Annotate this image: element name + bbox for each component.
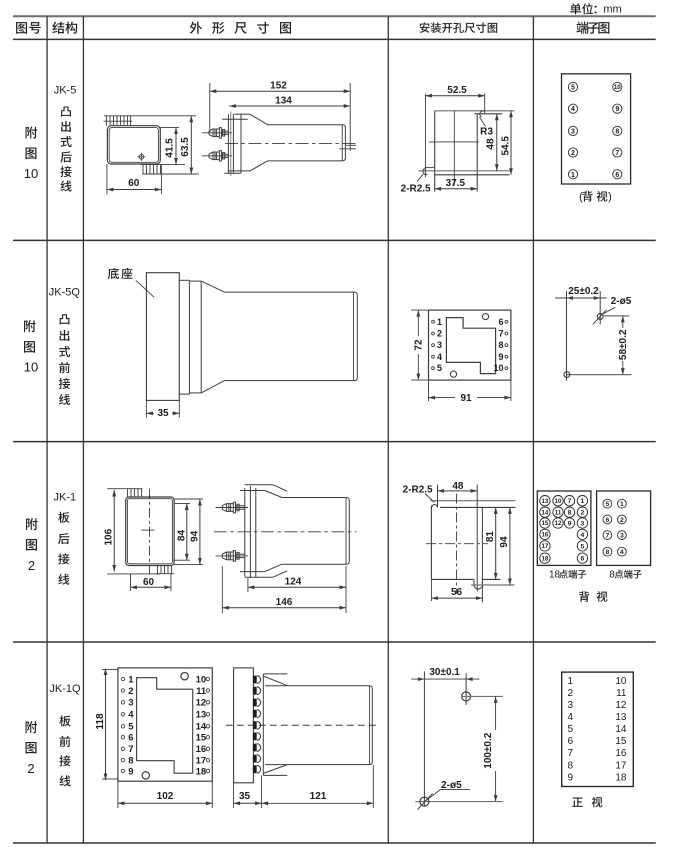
svg-text:JK-1: JK-1 (53, 492, 76, 504)
svg-text:9: 9 (128, 766, 133, 777)
svg-text:9: 9 (568, 520, 572, 527)
svg-text:12: 12 (615, 700, 627, 711)
svg-text:60: 60 (128, 178, 140, 189)
svg-text:9: 9 (615, 106, 619, 113)
svg-text:11: 11 (555, 509, 562, 516)
svg-text:81: 81 (485, 531, 496, 543)
svg-text:8: 8 (615, 128, 619, 135)
svg-text:5: 5 (581, 543, 585, 550)
svg-text:10: 10 (615, 676, 627, 687)
svg-text:2: 2 (28, 558, 35, 573)
svg-text:48: 48 (452, 481, 464, 492)
svg-text:152: 152 (270, 81, 287, 92)
svg-text:8: 8 (609, 570, 615, 581)
svg-text:35: 35 (157, 408, 169, 419)
svg-text:5: 5 (437, 363, 442, 373)
svg-text:4: 4 (128, 710, 134, 721)
svg-text:35: 35 (239, 791, 251, 802)
svg-text:5: 5 (568, 724, 574, 735)
svg-text:15: 15 (196, 733, 207, 744)
svg-text:5: 5 (606, 501, 610, 508)
svg-text:2: 2 (437, 329, 442, 339)
svg-text:10: 10 (555, 498, 562, 505)
svg-text:8: 8 (128, 755, 133, 766)
svg-text:8: 8 (606, 549, 610, 556)
svg-text:7: 7 (615, 150, 619, 157)
svg-text:54.5: 54.5 (500, 136, 511, 156)
svg-text:100±0.2: 100±0.2 (483, 732, 494, 769)
svg-text:1: 1 (568, 676, 574, 687)
svg-text:91: 91 (460, 393, 472, 404)
svg-text:118: 118 (95, 713, 106, 730)
svg-text:17: 17 (196, 755, 207, 766)
svg-text:14: 14 (541, 509, 548, 516)
svg-text:2-R2.5: 2-R2.5 (403, 484, 433, 495)
svg-text:48: 48 (486, 138, 497, 150)
svg-text:25±0.2: 25±0.2 (568, 286, 599, 297)
svg-text:2-ø5: 2-ø5 (611, 296, 632, 307)
svg-text:4: 4 (571, 106, 575, 113)
svg-text:1: 1 (581, 498, 585, 505)
svg-text:2: 2 (568, 688, 574, 699)
svg-text:R3: R3 (480, 126, 493, 137)
svg-text:3: 3 (128, 698, 133, 709)
svg-text:4: 4 (620, 549, 624, 556)
svg-text:15: 15 (541, 520, 548, 527)
svg-text:124: 124 (285, 576, 302, 587)
svg-text:10: 10 (614, 84, 621, 91)
svg-text:121: 121 (310, 791, 327, 802)
svg-text:6: 6 (581, 556, 585, 563)
svg-text:63.5: 63.5 (180, 137, 191, 157)
svg-text:10: 10 (493, 363, 503, 373)
svg-text:8: 8 (568, 510, 572, 517)
svg-text:5: 5 (571, 84, 575, 91)
svg-text:11: 11 (616, 688, 627, 699)
svg-text:94: 94 (499, 536, 510, 548)
svg-text:18: 18 (549, 570, 561, 581)
svg-text:30±0.1: 30±0.1 (429, 667, 460, 678)
svg-text:4: 4 (581, 532, 585, 539)
svg-text:18: 18 (541, 555, 548, 562)
svg-text:9: 9 (498, 352, 503, 362)
svg-text:58±0.2: 58±0.2 (618, 329, 629, 360)
svg-text:mm: mm (603, 4, 621, 16)
svg-text:JK-5: JK-5 (54, 85, 77, 97)
svg-text:9: 9 (568, 772, 574, 783)
svg-text:15: 15 (615, 736, 627, 747)
svg-text:1: 1 (128, 674, 134, 685)
svg-text:13: 13 (196, 710, 207, 721)
svg-text:52.5: 52.5 (447, 85, 467, 96)
svg-text:12: 12 (555, 520, 562, 527)
svg-text:2: 2 (581, 510, 585, 517)
svg-text:8: 8 (498, 340, 503, 350)
svg-text:10: 10 (24, 360, 38, 375)
svg-text:41.5: 41.5 (165, 138, 176, 158)
svg-text:4: 4 (568, 712, 574, 723)
svg-text:5: 5 (128, 722, 134, 733)
svg-text:1: 1 (437, 317, 442, 327)
svg-text:JK-5Q: JK-5Q (49, 287, 81, 299)
svg-text:2: 2 (620, 517, 624, 524)
svg-text:6: 6 (606, 517, 610, 524)
svg-text:): ) (608, 191, 612, 203)
svg-text:14: 14 (615, 724, 627, 735)
svg-text:16: 16 (196, 744, 207, 755)
svg-text:7: 7 (568, 498, 572, 505)
svg-text:1: 1 (571, 172, 575, 179)
svg-text:7: 7 (128, 744, 133, 755)
svg-text:16: 16 (541, 532, 548, 539)
svg-text:18: 18 (615, 772, 627, 783)
svg-text:72: 72 (414, 339, 425, 351)
svg-text:3: 3 (571, 128, 575, 135)
svg-text:102: 102 (157, 791, 174, 802)
svg-text:7: 7 (606, 533, 610, 540)
svg-text:2: 2 (128, 686, 133, 697)
svg-text:94: 94 (190, 530, 201, 542)
svg-text:13: 13 (615, 712, 627, 723)
svg-text:6: 6 (568, 736, 574, 747)
svg-text:18: 18 (196, 766, 207, 777)
svg-text:134: 134 (275, 95, 292, 106)
svg-text:17: 17 (615, 760, 627, 771)
svg-text:3: 3 (620, 533, 624, 540)
svg-text:2: 2 (571, 150, 575, 157)
svg-text:3: 3 (581, 520, 585, 527)
svg-text:10: 10 (24, 166, 38, 181)
svg-text:14: 14 (196, 722, 207, 733)
svg-text:6: 6 (128, 733, 133, 744)
svg-text:3: 3 (568, 700, 574, 711)
svg-text:146: 146 (276, 597, 293, 608)
svg-text:2-R2.5: 2-R2.5 (401, 183, 431, 194)
svg-text:4: 4 (437, 352, 442, 362)
svg-text:106: 106 (103, 528, 114, 545)
svg-text:16: 16 (615, 748, 627, 759)
svg-text:13: 13 (541, 498, 548, 505)
svg-text:37.5: 37.5 (446, 178, 466, 189)
svg-text:7: 7 (498, 329, 503, 339)
svg-text:10: 10 (196, 674, 207, 685)
svg-text:8: 8 (568, 760, 574, 771)
svg-text:2: 2 (27, 761, 34, 776)
svg-text:3: 3 (437, 340, 442, 350)
svg-text:1: 1 (620, 501, 624, 508)
svg-text:84: 84 (176, 530, 187, 542)
svg-text:56: 56 (451, 587, 463, 598)
svg-text:7: 7 (568, 748, 574, 759)
svg-text:JK-1Q: JK-1Q (49, 683, 81, 695)
svg-text:6: 6 (615, 172, 619, 179)
svg-text:11: 11 (196, 686, 207, 697)
svg-text:60: 60 (143, 577, 155, 588)
svg-text:6: 6 (498, 317, 503, 327)
svg-text:17: 17 (541, 543, 548, 550)
svg-text:(: ( (579, 191, 583, 203)
svg-text:12: 12 (196, 698, 207, 709)
